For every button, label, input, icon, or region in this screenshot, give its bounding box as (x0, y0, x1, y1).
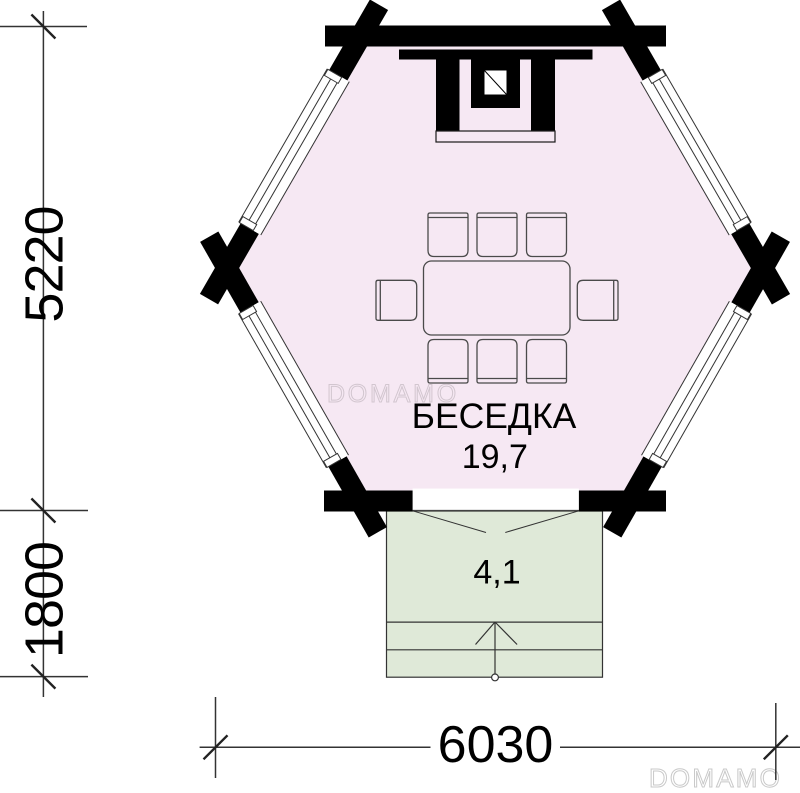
svg-text:6030: 6030 (438, 716, 554, 774)
svg-text:19,7: 19,7 (462, 438, 528, 476)
svg-text:БЕСЕДКА: БЕСЕДКА (412, 396, 577, 436)
svg-text:1800: 1800 (15, 542, 75, 658)
svg-text:5220: 5220 (15, 206, 75, 322)
svg-text:4,1: 4,1 (473, 554, 520, 592)
svg-text:DOMAMO: DOMAMO (649, 763, 782, 793)
